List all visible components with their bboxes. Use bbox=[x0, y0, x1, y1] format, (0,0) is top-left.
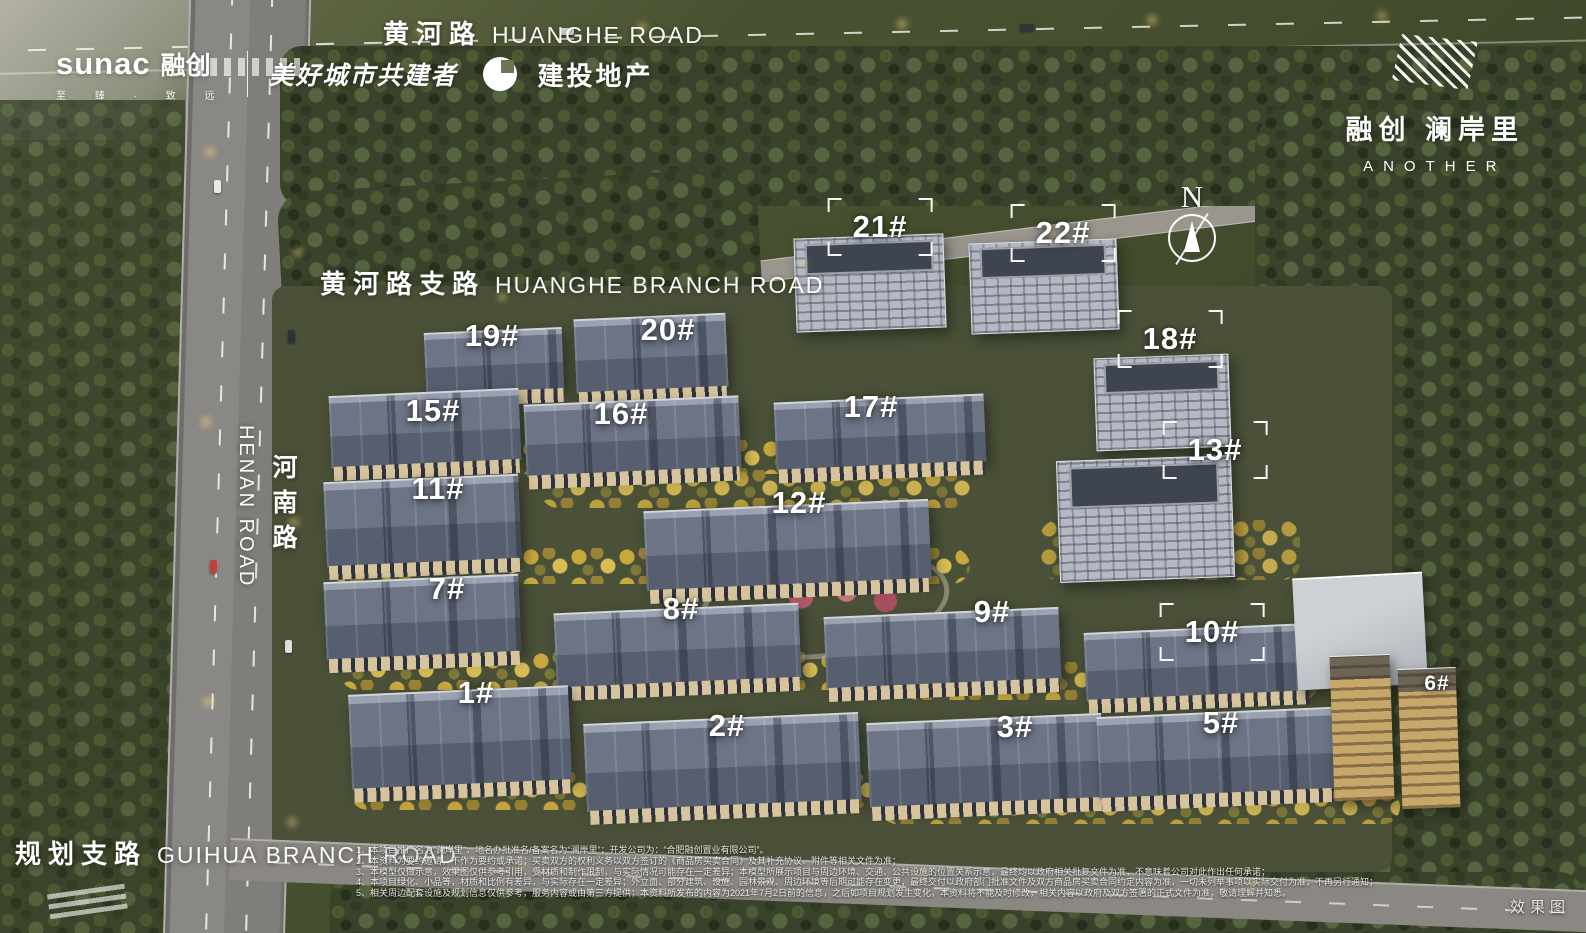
road-label-henan: 河南路 HENAN ROAD bbox=[234, 425, 301, 588]
building-number: 18# bbox=[1143, 321, 1198, 356]
road-label-zh: 河南路 bbox=[265, 454, 301, 559]
bracket-corner bbox=[1250, 647, 1264, 661]
road-label-zh: 黄河路支路 bbox=[320, 264, 485, 301]
disclaimer-line: 4、本项目绿化、小品等，材质和比例有差异，与实际存在一定差异；外立面、部分建筑、… bbox=[356, 877, 1546, 888]
road-label-en: HUANGHE BRANCH ROAD bbox=[495, 272, 824, 299]
building-number: 2# bbox=[709, 708, 745, 743]
compass-icon bbox=[1168, 214, 1216, 262]
bracket-corner bbox=[1163, 421, 1177, 435]
brand-slogan: 美好城市共建者 bbox=[268, 56, 457, 92]
building-label-7: 7# bbox=[429, 571, 465, 607]
bracket-corner bbox=[1011, 204, 1025, 218]
project-logo: 融创 澜岸里 ANOTHER bbox=[1345, 34, 1524, 175]
bracket-corner bbox=[1160, 603, 1174, 617]
project-name: 融创 澜岸里 bbox=[1345, 108, 1524, 147]
masterplan-render: 黄河路 HUANGHE ROAD 黄河路支路 HUANGHE BRANCH RO… bbox=[0, 0, 1586, 933]
building-label-13: 13# bbox=[1163, 421, 1268, 479]
bracket-corner bbox=[1160, 647, 1174, 661]
building-number: 3# bbox=[997, 709, 1033, 744]
building-label-9: 9# bbox=[974, 594, 1010, 630]
building-label-22: 22# bbox=[1011, 204, 1116, 262]
building-number: 11# bbox=[411, 471, 464, 506]
building-6a bbox=[1329, 654, 1394, 801]
bracket-corner bbox=[1011, 248, 1025, 262]
building-number: 12# bbox=[772, 485, 827, 520]
sunac-tagline: 至 臻 · 致 远 bbox=[56, 87, 227, 102]
building-number: 10# bbox=[1185, 614, 1240, 649]
disclaimer-text: 1、本项目推广名为“澜岸里”，地名办批准名/备案名为“澜岸里”；开发公司为：“合… bbox=[356, 845, 1546, 899]
render-note: 效果图 bbox=[1510, 896, 1570, 917]
building-label-20: 20# bbox=[641, 312, 696, 348]
bracket-corner bbox=[1250, 603, 1264, 617]
field-left bbox=[0, 100, 185, 933]
building-number: 21# bbox=[853, 209, 908, 244]
car bbox=[285, 640, 292, 653]
building-9 bbox=[824, 607, 1062, 689]
compass: N bbox=[1162, 182, 1222, 262]
disclaimer-line: 3、本模型仅做示意，效果图仅供参考引用，受材质和制作限制，与实际情况可能存在一定… bbox=[356, 867, 1546, 878]
building-number: 9# bbox=[974, 594, 1010, 629]
car bbox=[1020, 24, 1034, 31]
building-number: 17# bbox=[844, 389, 899, 424]
building-label-10: 10# bbox=[1160, 603, 1265, 661]
building-label-5: 5# bbox=[1203, 705, 1239, 741]
disclaimer-line: 1、本项目推广名为“澜岸里”，地名办批准名/备案名为“澜岸里”；开发公司为：“合… bbox=[356, 845, 1546, 856]
building-number: 16# bbox=[594, 396, 649, 431]
building-number: 6# bbox=[1424, 672, 1449, 695]
bracket-corner bbox=[1253, 421, 1267, 435]
building-label-19: 19# bbox=[465, 318, 520, 354]
building-label-8: 8# bbox=[663, 591, 699, 627]
bracket-corner bbox=[918, 198, 932, 212]
car bbox=[288, 330, 295, 343]
building-number: 22# bbox=[1036, 215, 1091, 250]
building-label-15: 15# bbox=[406, 393, 461, 429]
street-lamps bbox=[0, 0, 4, 4]
car bbox=[214, 180, 221, 193]
bracket-corner bbox=[828, 242, 842, 256]
sunac-logo-latin: sunac bbox=[56, 46, 151, 82]
project-name-en: ANOTHER bbox=[1363, 158, 1506, 175]
building-3 bbox=[866, 713, 1104, 808]
building-number: 13# bbox=[1188, 432, 1243, 467]
developer-branding: sunac 融创 至 臻 · 致 远 美好城市共建者 建投地产 bbox=[56, 46, 653, 102]
bracket-corner bbox=[1208, 310, 1222, 324]
building-label-3: 3# bbox=[997, 709, 1033, 745]
building-number: 5# bbox=[1203, 705, 1239, 740]
building-number: 20# bbox=[641, 312, 696, 347]
project-logo-mark-icon bbox=[1392, 34, 1478, 90]
building-label-1: 1# bbox=[458, 675, 494, 711]
building-label-18: 18# bbox=[1118, 310, 1223, 368]
building-label-17: 17# bbox=[844, 389, 899, 425]
building-label-11: 11# bbox=[411, 471, 464, 507]
building-label-2: 2# bbox=[709, 708, 745, 744]
disclaimer-line: 5、相关周边配套设施及规划信息仅供参考，服务内容或由第三方提供；本资料所发布的内… bbox=[356, 888, 1546, 899]
building-number: 8# bbox=[663, 591, 699, 626]
disclaimer-line: 2、本资料为要约邀请，不作为要约或承诺；买卖双方的权利义务以双方签订的《商品房买… bbox=[356, 856, 1546, 867]
sunac-logo: sunac 融创 至 臻 · 致 远 bbox=[56, 46, 227, 102]
road-label-zh: 规划支路 bbox=[15, 834, 147, 871]
sunac-logo-zh: 融创 bbox=[161, 46, 211, 82]
bracket-corner bbox=[1118, 310, 1132, 324]
building-7 bbox=[323, 574, 521, 660]
bracket-corner bbox=[1253, 465, 1267, 479]
partner-name: 建投地产 bbox=[537, 56, 653, 93]
building-number: 19# bbox=[465, 318, 520, 353]
building-label-6: 6# bbox=[1424, 672, 1449, 696]
building-label-21: 21# bbox=[828, 198, 933, 256]
road-label-huanghe-branch: 黄河路支路 HUANGHE BRANCH ROAD bbox=[320, 264, 824, 301]
jiantou-logo-icon bbox=[483, 57, 517, 91]
bracket-corner bbox=[1163, 465, 1177, 479]
bracket-corner bbox=[918, 242, 932, 256]
bracket-corner bbox=[1208, 354, 1222, 368]
road-label-en: HENAN ROAD bbox=[234, 425, 257, 588]
bracket-corner bbox=[828, 198, 842, 212]
bracket-corner bbox=[1101, 248, 1115, 262]
building-number: 15# bbox=[406, 393, 461, 428]
compass-needle bbox=[1184, 221, 1200, 252]
building-number: 7# bbox=[429, 571, 465, 606]
bracket-corner bbox=[1101, 204, 1115, 218]
road-label-en: HUANGHE ROAD bbox=[492, 22, 704, 49]
car bbox=[210, 560, 217, 573]
building-number: 1# bbox=[458, 675, 494, 710]
building-label-12: 12# bbox=[772, 485, 827, 521]
divider bbox=[247, 51, 248, 97]
building-label-16: 16# bbox=[594, 396, 649, 432]
bracket-corner bbox=[1118, 354, 1132, 368]
compass-north-label: N bbox=[1162, 182, 1222, 212]
